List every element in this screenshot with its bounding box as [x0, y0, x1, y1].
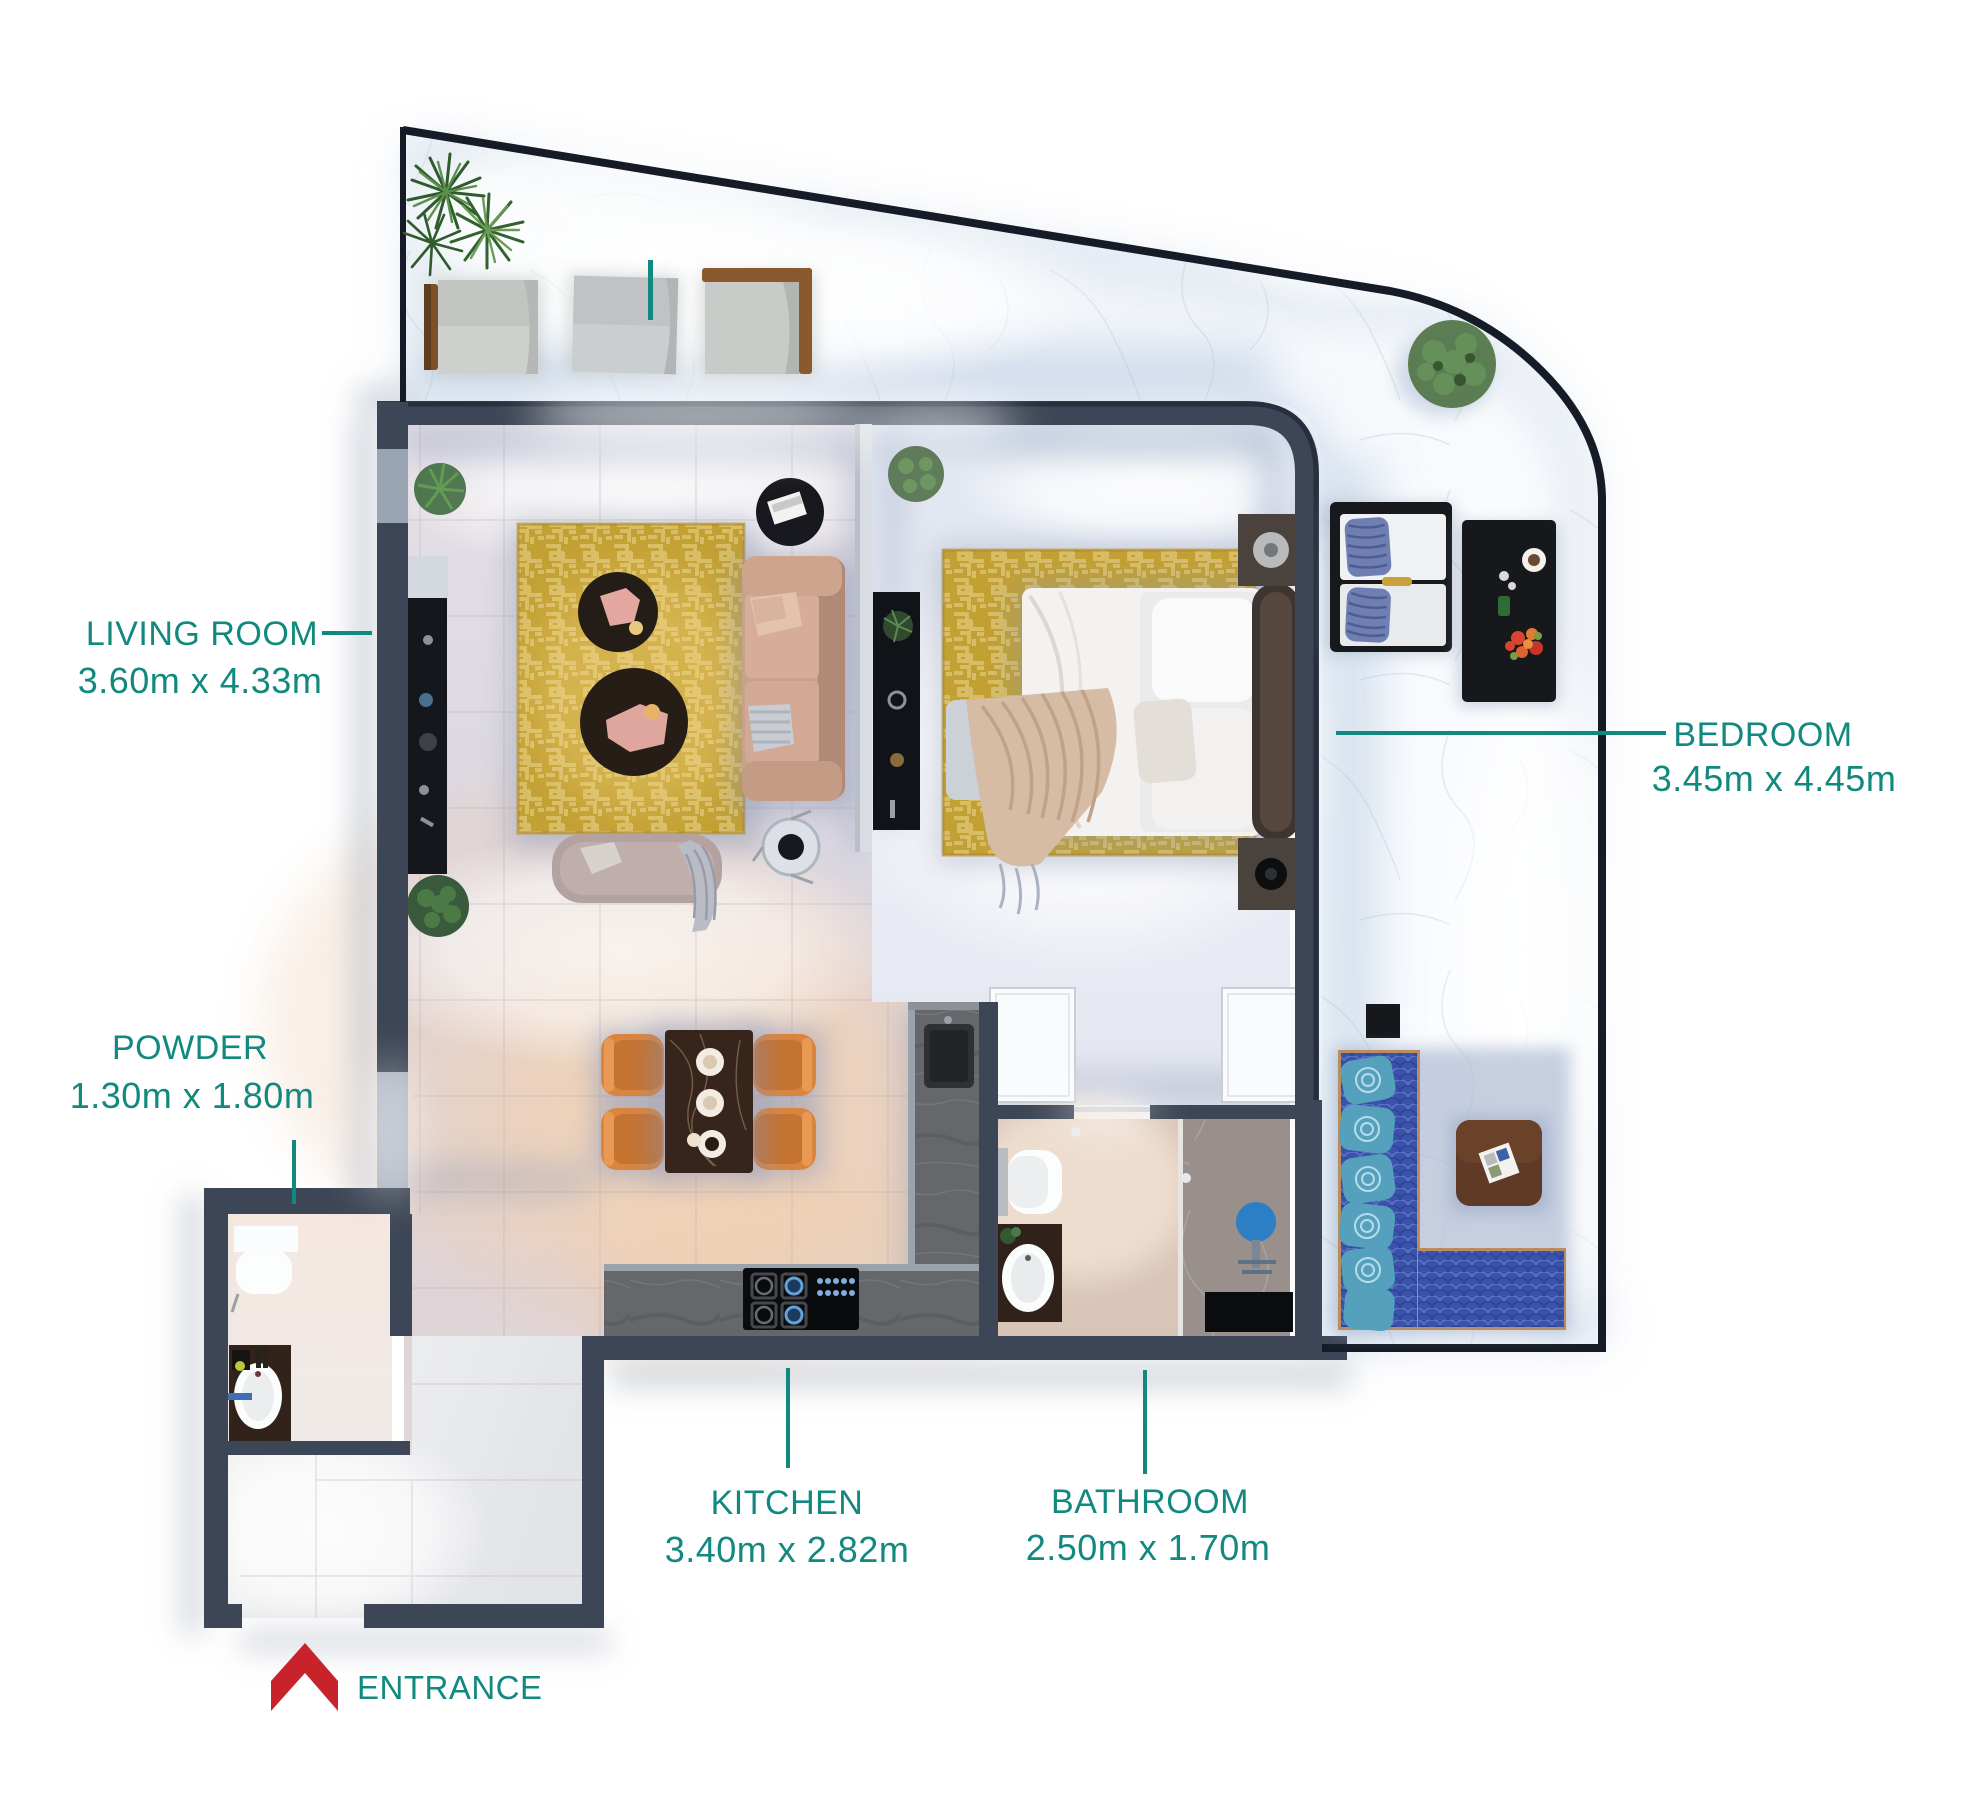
svg-text:POWDER: POWDER: [112, 1029, 268, 1067]
svg-text:3.40m x 2.82m: 3.40m x 2.82m: [665, 1529, 910, 1570]
svg-text:ENTRANCE: ENTRANCE: [357, 1669, 543, 1706]
svg-text:KITCHEN: KITCHEN: [711, 1484, 864, 1522]
svg-text:3.60m x 4.33m: 3.60m x 4.33m: [78, 660, 323, 701]
svg-text:2.50m x 1.70m: 2.50m x 1.70m: [1026, 1527, 1271, 1568]
svg-text:1.30m x 1.80m: 1.30m x 1.80m: [70, 1075, 315, 1116]
svg-text:BATHROOM: BATHROOM: [1051, 1483, 1249, 1521]
svg-text:LIVING ROOM: LIVING ROOM: [86, 615, 318, 653]
svg-text:3.45m x 4.45m: 3.45m x 4.45m: [1652, 758, 1897, 799]
svg-text:BEDROOM: BEDROOM: [1673, 716, 1852, 754]
